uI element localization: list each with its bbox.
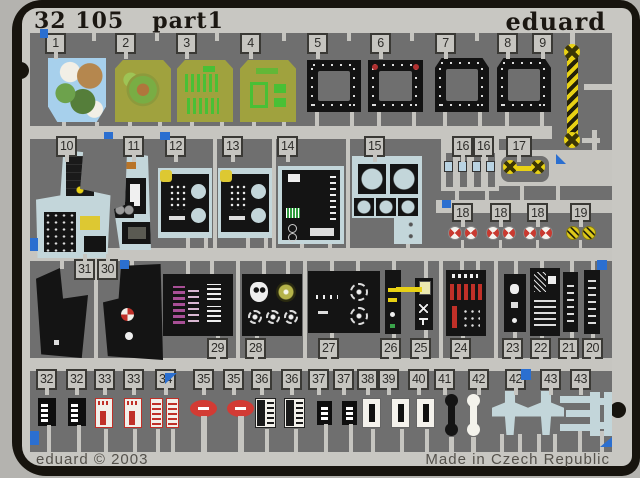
sprue-stub	[424, 259, 428, 279]
sprue-stub	[350, 112, 354, 127]
tab-29: 29	[207, 338, 228, 359]
sprue-stub	[265, 429, 269, 452]
part-36-placard	[255, 398, 276, 428]
part-36-placard	[284, 398, 305, 428]
part-35-red-tag	[190, 400, 217, 417]
part-26-strip	[385, 270, 401, 334]
sprue-stub	[449, 437, 454, 452]
sprue-stub	[210, 259, 214, 275]
sprue-stub	[556, 186, 560, 201]
sprue-stub	[294, 429, 298, 452]
tab-8: 8	[497, 33, 518, 54]
tab-7: 7	[435, 33, 456, 54]
sprue-stub	[443, 112, 447, 127]
part-22-panel	[530, 268, 560, 336]
tab-14: 14	[277, 136, 298, 157]
tab-43b: 43	[570, 369, 591, 390]
part-25-yellow-bar	[396, 287, 422, 292]
part-1-map-film	[48, 58, 106, 122]
tab-24: 24	[450, 338, 471, 359]
blue-backing-mark	[120, 260, 129, 269]
tab-23: 23	[502, 338, 523, 359]
part-18-disc	[539, 226, 553, 240]
sprue-stub	[425, 429, 429, 452]
tab-39: 39	[378, 369, 399, 390]
sprue-stub	[92, 33, 96, 41]
blue-backing-mark	[30, 431, 39, 445]
sheet-title: 32 105part1	[34, 8, 224, 34]
tab-21: 21	[558, 338, 579, 359]
part-38-placard	[362, 398, 381, 428]
part-32-placard	[68, 398, 86, 426]
sprue-stub	[514, 259, 518, 275]
tab-4: 4	[240, 33, 261, 54]
part-13-gauge-panel-film	[218, 168, 272, 238]
sprue-stub	[518, 434, 522, 452]
part-20-strip	[584, 270, 600, 334]
part-32-placard	[38, 398, 56, 426]
part-39-placard	[416, 398, 435, 428]
sprue-stub	[262, 259, 266, 275]
part-15-tail	[394, 218, 422, 244]
part-15-gauge-cluster-film	[352, 156, 422, 218]
part-24-breaker-panel	[446, 270, 486, 336]
part-41-handle	[466, 394, 481, 436]
sprue-stub	[540, 112, 544, 127]
sprue-stub	[186, 259, 190, 275]
registration-hole	[610, 402, 626, 418]
part-19-disc	[582, 226, 596, 240]
part-9-bottom-ball	[564, 132, 580, 148]
sprue-stub	[520, 186, 524, 201]
sprue-runner	[303, 261, 307, 359]
tab-35a: 35	[193, 369, 214, 390]
tab-35b: 35	[223, 369, 244, 390]
tab-28: 28	[245, 338, 266, 359]
sprue-stub	[349, 424, 353, 452]
part-21-strip	[563, 272, 578, 332]
tab-25: 25	[410, 338, 431, 359]
registration-hole	[12, 62, 29, 79]
sprue-stub	[377, 112, 381, 127]
sprue-runner	[494, 261, 498, 359]
part-43-bracket	[594, 392, 612, 436]
tab-18c: 18	[527, 203, 548, 222]
part-3-console-film	[177, 60, 233, 122]
tab-26: 26	[380, 338, 401, 359]
tab-9: 9	[532, 33, 553, 54]
part-40-handle	[444, 394, 459, 436]
part-33-placard	[124, 398, 142, 428]
tab-2: 2	[115, 33, 136, 54]
tab-33b: 33	[123, 369, 144, 390]
origin-text: Made in Czech Republic	[425, 451, 610, 468]
sprue-stub	[282, 33, 286, 41]
part-2-camo-film	[115, 60, 171, 122]
sprue-stub	[553, 434, 557, 452]
sprue-runner	[213, 139, 217, 249]
sprue-stub	[171, 429, 175, 452]
part-28-panel	[242, 274, 302, 336]
part-29-panel	[163, 274, 233, 336]
part-7-panel-frame	[435, 58, 489, 112]
tab-41: 41	[434, 369, 455, 390]
blue-backing-mark	[40, 29, 48, 38]
sprue-stub	[156, 429, 160, 452]
part-18-disc	[464, 226, 478, 240]
tab-42a: 42	[468, 369, 489, 390]
tab-3: 3	[176, 33, 197, 54]
part-27-panel	[308, 271, 380, 333]
sprue-stub	[412, 112, 416, 127]
tab-33a: 33	[94, 369, 115, 390]
part-label: part1	[152, 8, 224, 34]
sprue-stub	[324, 424, 328, 452]
sprue-runner	[272, 139, 276, 249]
tab-19: 19	[570, 203, 591, 222]
sprue-stub	[286, 259, 290, 275]
sprue-stub	[347, 33, 351, 41]
tab-13: 13	[222, 136, 243, 157]
tab-18b: 18	[490, 203, 511, 222]
part-37-placard	[317, 401, 332, 425]
sprue-stub	[371, 429, 375, 452]
tab-11: 11	[123, 136, 144, 157]
sprue-runner	[439, 261, 443, 359]
tab-18a: 18	[452, 203, 473, 222]
sprue-stub	[582, 138, 600, 143]
part-25-strip	[415, 278, 433, 330]
tab-30: 30	[97, 259, 118, 280]
sprue-stub	[104, 429, 108, 452]
blue-backing-mark	[442, 200, 451, 208]
sprue-stub	[475, 33, 479, 41]
part-4-console-film	[240, 60, 296, 122]
sprue-stub	[410, 33, 414, 41]
tab-10: 10	[56, 136, 77, 157]
tab-16a: 16	[452, 136, 473, 157]
blue-backing-mark	[104, 132, 113, 139]
part-19-disc	[566, 226, 580, 240]
sprue-stub	[215, 33, 219, 41]
blue-backing-mark	[521, 369, 531, 380]
part-33-placard	[95, 398, 113, 428]
part-18-disc	[502, 226, 516, 240]
part-34-placard	[150, 398, 163, 428]
tab-1: 1	[45, 33, 66, 54]
tab-32b: 32	[66, 369, 87, 390]
sprue-stub	[315, 112, 319, 127]
sprue-stub	[77, 425, 81, 452]
tab-17: 17	[506, 136, 532, 157]
part-9-top-ball	[564, 44, 580, 60]
tab-20: 20	[582, 338, 603, 359]
part-39-placard	[391, 398, 410, 428]
photoetch-sheet-photo: 32 105part1 eduard 1 2 3 4 5 6 7 8 9 10 …	[0, 0, 640, 478]
tab-43a: 43	[540, 369, 561, 390]
tab-40: 40	[408, 369, 429, 390]
tab-6: 6	[370, 33, 391, 54]
tab-15: 15	[364, 136, 385, 157]
part-8-panel-frame	[497, 58, 551, 112]
part-6-panel-frame	[368, 60, 423, 112]
part-23-strip	[504, 274, 526, 332]
part-18-disc	[486, 226, 500, 240]
tab-22: 22	[530, 338, 551, 359]
tab-36a: 36	[251, 369, 272, 390]
sprue-stub	[201, 416, 207, 452]
sprue-stub	[537, 434, 541, 452]
part-35-red-tag	[227, 400, 254, 417]
sprue-stub	[478, 112, 482, 127]
sprue-runner	[236, 261, 240, 359]
blue-backing-mark	[597, 260, 607, 270]
tab-31: 31	[74, 259, 95, 280]
sprue-stub	[584, 84, 612, 90]
copyright-text: eduard © 2003	[36, 451, 148, 468]
tab-27: 27	[318, 338, 339, 359]
sprue-stub	[500, 434, 504, 452]
sprue-runner	[346, 139, 350, 249]
sprue-stub	[471, 437, 476, 452]
tab-37a: 37	[308, 369, 329, 390]
part-12-gauge-panel-film	[158, 168, 212, 238]
sprue-stub	[47, 425, 51, 452]
blue-backing-mark	[30, 238, 38, 251]
part-5-panel-frame	[307, 60, 361, 112]
tab-16b: 16	[473, 136, 494, 157]
part-18-disc	[448, 226, 462, 240]
sprue-stub	[155, 33, 159, 41]
blue-backing-mark	[160, 132, 170, 140]
tab-38: 38	[357, 369, 378, 390]
tab-5: 5	[307, 33, 328, 54]
sprue-stub	[505, 112, 509, 127]
sprue-stub	[570, 259, 574, 273]
part-37-placard	[342, 401, 357, 425]
brand-logo: eduard	[506, 7, 606, 36]
sprue-stub	[400, 429, 404, 452]
part-14-main-panel-film	[278, 166, 344, 244]
tab-37b: 37	[333, 369, 354, 390]
part-9-hazard-rod	[567, 50, 578, 142]
tab-32a: 32	[36, 369, 57, 390]
part-18-disc	[523, 226, 537, 240]
sprue-stub	[238, 416, 244, 452]
tab-36b: 36	[281, 369, 302, 390]
sprue-stub	[133, 429, 137, 452]
part-34-placard	[166, 398, 179, 428]
